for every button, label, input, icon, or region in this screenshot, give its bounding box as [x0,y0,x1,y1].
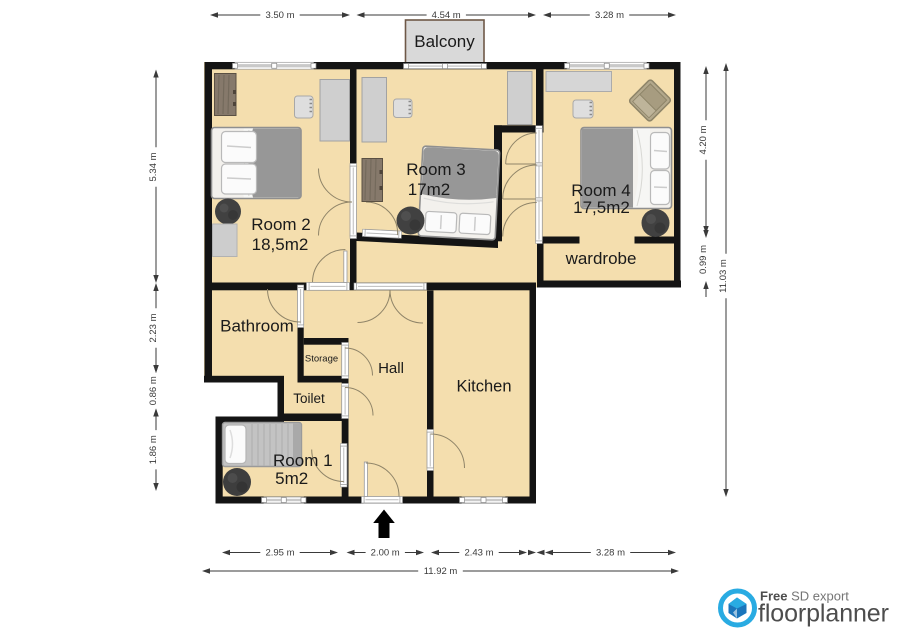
svg-text:Room 3: Room 3 [406,160,466,179]
svg-text:0.99 m: 0.99 m [698,245,709,274]
svg-text:5.34 m: 5.34 m [148,152,159,181]
svg-text:3.28 m: 3.28 m [595,10,624,21]
svg-text:2.00 m: 2.00 m [371,548,400,559]
svg-text:Balcony: Balcony [414,32,475,51]
svg-text:floorplanner: floorplanner [758,600,889,628]
svg-text:Kitchen: Kitchen [456,378,511,396]
svg-text:17m2: 17m2 [408,180,451,199]
svg-text:3.50 m: 3.50 m [265,10,294,21]
svg-text:Room 1: Room 1 [273,451,333,470]
svg-text:17,5m2: 17,5m2 [573,198,630,217]
svg-text:Bathroom: Bathroom [220,317,294,336]
svg-text:wardrobe: wardrobe [565,249,637,268]
svg-text:2.43 m: 2.43 m [464,548,493,559]
svg-text:4.20 m: 4.20 m [698,125,709,154]
svg-text:Hall: Hall [378,360,404,377]
svg-text:Room 2: Room 2 [251,215,311,234]
svg-text:3.28 m: 3.28 m [596,548,625,559]
svg-text:2.95 m: 2.95 m [265,548,294,559]
svg-text:18,5m2: 18,5m2 [252,235,309,254]
svg-text:2.23 m: 2.23 m [148,313,159,342]
svg-text:11.03 m: 11.03 m [718,259,729,293]
svg-text:11.92 m: 11.92 m [424,566,458,577]
svg-text:1.86 m: 1.86 m [148,435,159,464]
svg-text:Toilet: Toilet [293,391,325,406]
svg-text:0.86 m: 0.86 m [148,376,159,405]
svg-text:Storage: Storage [305,354,338,365]
svg-text:5m2: 5m2 [275,469,308,488]
